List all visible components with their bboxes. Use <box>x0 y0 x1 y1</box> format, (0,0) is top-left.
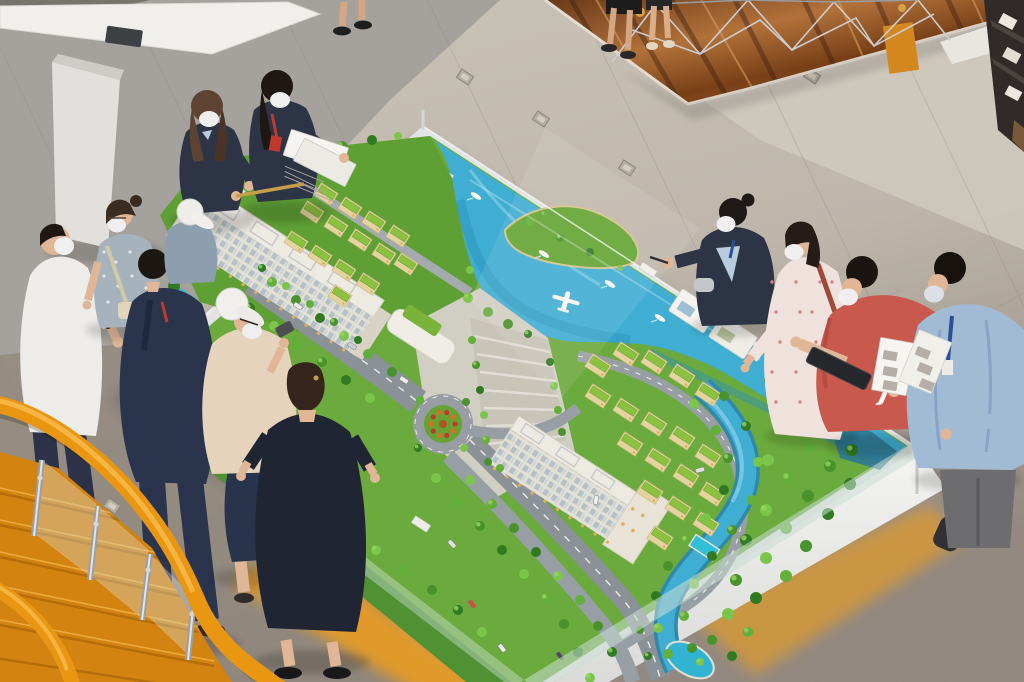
showroom-photo: f <box>0 0 1024 682</box>
photo-tone-overlay <box>0 0 1024 682</box>
scene-canvas: f <box>0 0 1024 682</box>
